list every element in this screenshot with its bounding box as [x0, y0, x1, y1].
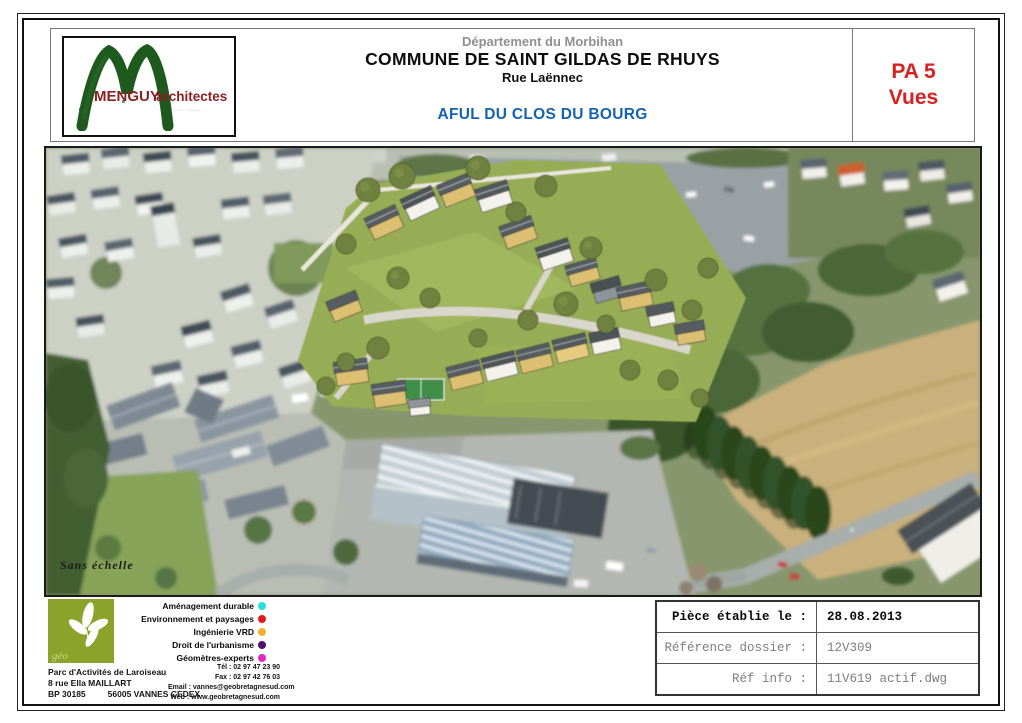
- aerial-photo: [44, 146, 982, 597]
- surveyor-contact: Tél : 02 97 47 23 90 Fax : 02 97 42 76 0…: [168, 663, 280, 704]
- legend-dot: [258, 641, 266, 649]
- row-label: Réf info :: [657, 664, 817, 694]
- document-code-box: PA 5 Vues: [852, 29, 974, 141]
- contact-fax: Fax : 02 97 42 76 03: [168, 673, 280, 683]
- legend-label: Ingénierie VRD: [194, 627, 254, 637]
- architect-word: architectes: [156, 89, 227, 104]
- row-label: Référence dossier :: [657, 633, 817, 663]
- title-block: MENGUY architectes ··· ··· ······· Dépar…: [50, 28, 975, 142]
- table-row: Référence dossier : 12V309: [657, 633, 978, 664]
- row-value: 12V309: [817, 633, 978, 663]
- row-value: 11V619 actif.dwg: [817, 664, 978, 694]
- legend: Aménagement durable Environnement et pay…: [118, 599, 266, 664]
- architect-tagline: ··· ··· ·······: [169, 107, 201, 114]
- row-value: 28.08.2013: [817, 602, 978, 632]
- legend-item: Aménagement durable: [118, 599, 266, 612]
- legend-label: Aménagement durable: [162, 601, 254, 611]
- menguy-logo-icon: MENGUY architectes ··· ··· ·······: [64, 38, 230, 131]
- project-title: AFUL DU CLOS DU BOURG: [232, 106, 853, 124]
- aerial-photo-art: [46, 148, 980, 595]
- legend-item: Ingénierie VRD: [118, 625, 266, 638]
- architect-name: MENGUY: [94, 88, 160, 105]
- legend-item: Droit de l'urbanisme: [118, 638, 266, 651]
- contact-web: Web : www.geobretagnesud.com: [168, 693, 280, 703]
- document-info-table: Pièce établie le : 28.08.2013 Référence …: [655, 600, 980, 696]
- scale-note: Sans échelle: [60, 558, 134, 573]
- row-label: Pièce établie le :: [657, 602, 817, 632]
- legend-dot: [258, 654, 266, 662]
- document-code: PA 5: [891, 59, 935, 85]
- contact-tel: Tél : 02 97 47 23 90: [168, 663, 280, 673]
- address-bp: BP 30185: [48, 689, 86, 699]
- document-type: Vues: [889, 85, 938, 111]
- menguy-logo: MENGUY architectes ··· ··· ·······: [62, 36, 236, 137]
- legend-dot: [258, 615, 266, 623]
- legend-label: Droit de l'urbanisme: [172, 640, 254, 650]
- table-row: Pièce établie le : 28.08.2013: [657, 602, 978, 633]
- geo-bretagne-sud-logo: géo: [48, 599, 114, 663]
- department-title: Département du Morbihan: [232, 34, 853, 49]
- legend-item: Environnement et paysages: [118, 612, 266, 625]
- legend-dot: [258, 628, 266, 636]
- legend-label: Environnement et paysages: [141, 614, 254, 624]
- title-texts: Département du Morbihan COMMUNE DE SAINT…: [232, 29, 853, 141]
- commune-title: COMMUNE DE SAINT GILDAS DE RHUYS: [232, 49, 853, 70]
- legend-label: Géomètres-experts: [177, 653, 254, 663]
- geo-logo-text: géo: [52, 650, 68, 662]
- legend-dot: [258, 602, 266, 610]
- table-row: Réf info : 11V619 actif.dwg: [657, 664, 978, 694]
- street-subtitle: Rue Laënnec: [232, 70, 853, 85]
- contact-email: Email : vannes@geobretagnesud.com: [168, 683, 280, 693]
